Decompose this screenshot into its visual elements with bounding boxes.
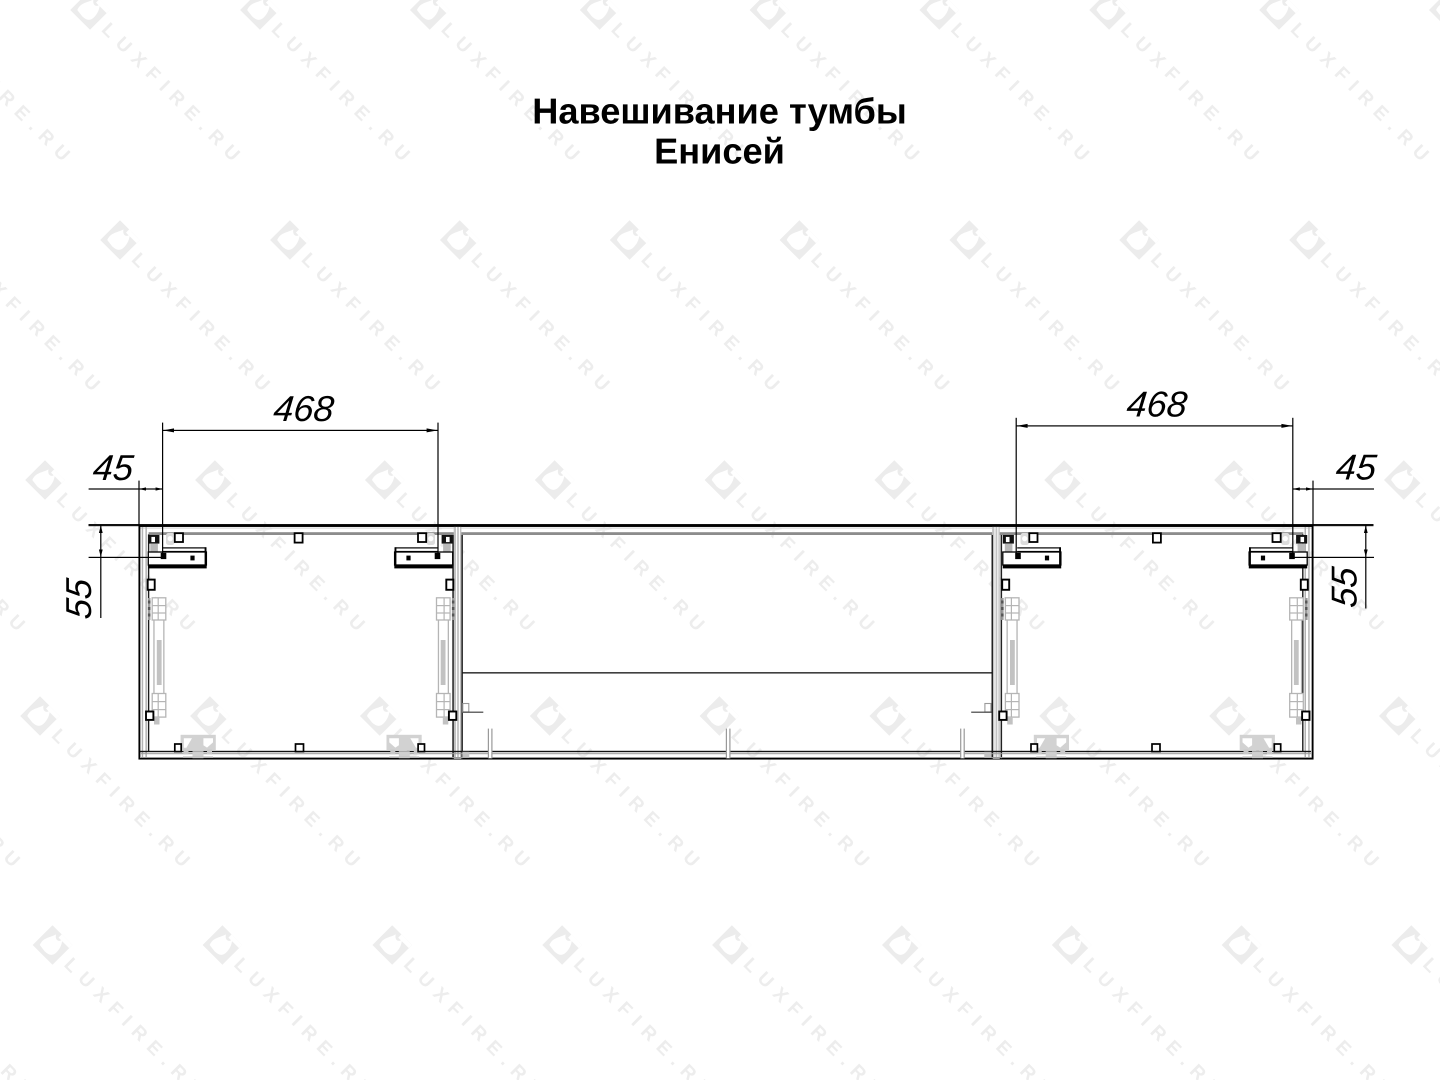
svg-text:55: 55 — [58, 576, 99, 621]
svg-text:468: 468 — [1125, 384, 1189, 425]
svg-text:Енисей: Енисей — [654, 131, 785, 172]
svg-text:Навешивание тумбы: Навешивание тумбы — [532, 91, 907, 132]
svg-text:45: 45 — [1334, 447, 1379, 488]
svg-text:468: 468 — [272, 388, 336, 429]
svg-text:55: 55 — [1324, 564, 1365, 609]
svg-text:45: 45 — [91, 447, 136, 488]
